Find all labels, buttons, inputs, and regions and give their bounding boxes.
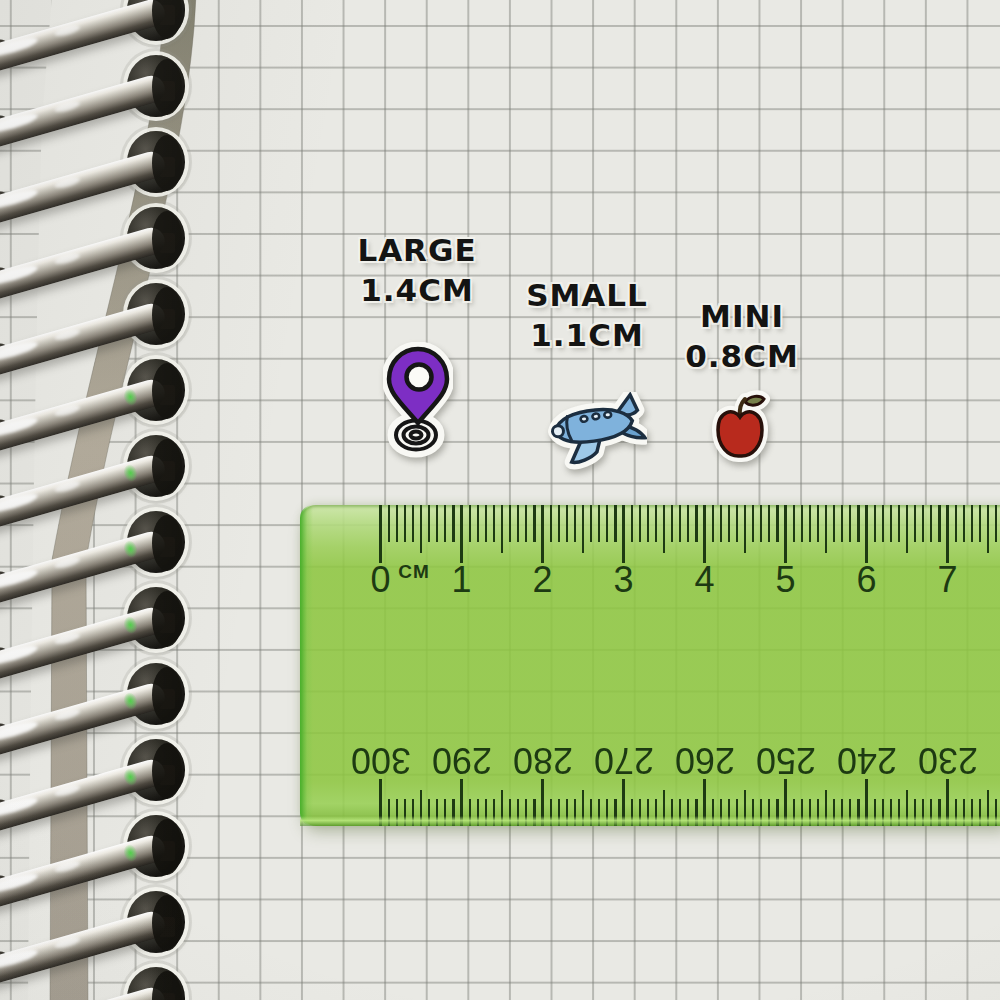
- ruler-tick: [728, 799, 730, 826]
- wire-highlight: [0, 642, 39, 667]
- ruler-tick: [533, 505, 535, 542]
- ruler-tick: [720, 505, 722, 542]
- ruler-tick: [671, 505, 673, 542]
- ruler-tick: [979, 505, 981, 542]
- wire-highlight: [54, 251, 81, 266]
- sticker-airplane: [543, 392, 647, 470]
- ruler-tick: [525, 799, 527, 826]
- ruler-tick: [703, 779, 705, 826]
- ruler-tick: [452, 799, 454, 826]
- ruler-tick: [679, 505, 681, 542]
- ruler-tick: [614, 505, 616, 542]
- wire-highlight: [0, 566, 39, 591]
- wire-green-reflection: [122, 843, 139, 863]
- ruler-tick: [541, 779, 543, 826]
- ruler-tick: [987, 790, 989, 826]
- ruler-tick: [995, 505, 997, 542]
- wire-green-reflection: [122, 691, 139, 711]
- ruler-tick: [671, 799, 673, 826]
- ruler-tick: [388, 505, 390, 542]
- ruler-number-bottom: 260: [668, 745, 742, 775]
- ruler-tick: [857, 799, 859, 826]
- ruler-tick: [550, 799, 552, 826]
- ruler-tick: [404, 799, 406, 826]
- ruler-tick: [631, 799, 633, 826]
- ruler: 01234567 300290280270260250240230 CM: [300, 505, 1000, 826]
- ruler-tick: [874, 799, 876, 826]
- ruler-tick: [631, 505, 633, 542]
- wire-green-reflection: [122, 463, 139, 483]
- ruler-tick: [598, 505, 600, 542]
- sticker-apple: [709, 389, 771, 468]
- ruler-tick: [655, 505, 657, 542]
- ruler-tick: [444, 505, 446, 542]
- ruler-tick: [712, 799, 714, 826]
- ruler-tick: [485, 799, 487, 826]
- wire-highlight: [0, 794, 39, 819]
- wire-highlight: [54, 555, 81, 570]
- ruler-tick: [841, 505, 843, 542]
- ruler-tick: [379, 505, 381, 563]
- wire-highlight: [54, 175, 81, 190]
- ruler-number-top: 1: [432, 562, 492, 598]
- ruler-tick: [477, 799, 479, 826]
- sticker-location-pin: [383, 342, 453, 460]
- ruler-tick: [971, 505, 973, 542]
- ruler-tick: [574, 505, 576, 542]
- ruler-tick: [655, 799, 657, 826]
- ruler-tick: [987, 505, 989, 553]
- ruler-tick: [784, 779, 786, 826]
- wire-highlight: [0, 870, 39, 895]
- label-small-size: 1.1CM: [507, 315, 667, 355]
- ruler-tick: [558, 799, 560, 826]
- wire-highlight: [54, 707, 81, 722]
- ruler-tick: [501, 505, 503, 553]
- ruler-tick: [412, 799, 414, 826]
- label-large-title: LARGE: [337, 230, 497, 270]
- ruler-tick: [793, 505, 795, 542]
- ruler-tick: [720, 799, 722, 826]
- ruler-tick: [639, 505, 641, 542]
- ruler-tick: [647, 505, 649, 542]
- ruler-tick: [784, 505, 786, 563]
- ruler-tick: [622, 779, 624, 826]
- ruler-tick: [509, 505, 511, 542]
- ruler-tick: [728, 505, 730, 542]
- ruler-tick: [825, 505, 827, 553]
- ruler-tick: [857, 505, 859, 542]
- ruler-tick: [833, 505, 835, 542]
- wire-highlight: [0, 186, 39, 211]
- ring-hole-shadow: [152, 439, 182, 495]
- ruler-tick: [485, 505, 487, 542]
- ruler-number-bottom: 250: [749, 745, 823, 775]
- wire-highlight: [0, 262, 39, 287]
- label-large: LARGE 1.4CM: [337, 230, 497, 310]
- ruler-tick: [582, 790, 584, 826]
- ruler-tick: [420, 790, 422, 826]
- ruler-number-top: 4: [675, 562, 735, 598]
- label-large-size: 1.4CM: [337, 270, 497, 310]
- wire-highlight: [54, 327, 81, 342]
- wire-highlight: [54, 23, 81, 38]
- ruler-tick: [971, 799, 973, 826]
- ring-hole-shadow: [152, 515, 182, 571]
- ring-hole-shadow: [152, 363, 182, 419]
- ruler-tick: [922, 505, 924, 542]
- ruler-tick: [882, 799, 884, 826]
- ruler-tick: [388, 799, 390, 826]
- ruler-tick: [679, 799, 681, 826]
- ruler-tick: [460, 505, 462, 563]
- ruler-tick: [396, 505, 398, 542]
- ruler-tick: [979, 799, 981, 826]
- ruler-tick: [736, 505, 738, 542]
- ruler-tick: [882, 505, 884, 542]
- ruler-tick: [914, 505, 916, 542]
- ruler-number-bottom: 300: [344, 745, 418, 775]
- ruler-tick: [760, 799, 762, 826]
- ruler-tick: [598, 799, 600, 826]
- ruler-tick: [938, 799, 940, 826]
- wire-highlight: [0, 718, 39, 743]
- wire-highlight: [0, 110, 39, 135]
- ruler-tick: [647, 799, 649, 826]
- ruler-tick: [379, 779, 381, 826]
- ruler-tick: [687, 505, 689, 542]
- wire-green-reflection: [122, 767, 139, 787]
- ruler-tick: [817, 505, 819, 542]
- wire-highlight: [54, 631, 81, 646]
- ruler-tick: [938, 505, 940, 542]
- ruler-tick: [428, 505, 430, 542]
- ruler-number-top: 6: [837, 562, 897, 598]
- ruler-tick: [469, 799, 471, 826]
- ring-hole-shadow: [152, 819, 182, 875]
- wire-highlight: [54, 783, 81, 798]
- ruler-tick: [768, 799, 770, 826]
- ruler-tick: [558, 505, 560, 542]
- ruler-tick: [541, 505, 543, 563]
- ruler-tick: [995, 799, 997, 826]
- label-mini-title: MINI: [662, 296, 822, 336]
- ruler-tick: [752, 799, 754, 826]
- wire-green-reflection: [122, 539, 139, 559]
- ring-hole-shadow: [152, 59, 182, 115]
- ruler-tick: [801, 505, 803, 542]
- ruler-tick: [930, 799, 932, 826]
- ruler-number-bottom: 240: [830, 745, 904, 775]
- ruler-tick: [509, 799, 511, 826]
- ruler-tick: [801, 799, 803, 826]
- ruler-tick: [955, 505, 957, 542]
- wire-green-reflection: [122, 387, 139, 407]
- ring-hole-shadow: [152, 667, 182, 723]
- ruler-number-bottom: 230: [911, 745, 985, 775]
- ruler-tick: [914, 799, 916, 826]
- ruler-tick: [817, 799, 819, 826]
- ruler-tick: [930, 505, 932, 542]
- ruler-tick: [517, 505, 519, 542]
- ruler-tick: [963, 505, 965, 542]
- ruler-tick: [744, 790, 746, 826]
- ruler-tick: [776, 799, 778, 826]
- ruler-tick: [906, 790, 908, 826]
- ruler-tick: [590, 799, 592, 826]
- ruler-tick: [874, 505, 876, 542]
- ruler-tick: [906, 505, 908, 553]
- ruler-tick: [606, 799, 608, 826]
- ruler-tick: [428, 799, 430, 826]
- ruler-tick: [501, 790, 503, 826]
- ruler-tick: [533, 799, 535, 826]
- ruler-tick: [493, 505, 495, 542]
- ruler-tick: [898, 799, 900, 826]
- ruler-tick: [963, 799, 965, 826]
- ruler-tick: [525, 505, 527, 542]
- ruler-tick: [566, 799, 568, 826]
- ruler-tick: [833, 799, 835, 826]
- wire-highlight: [54, 403, 81, 418]
- wire-highlight: [0, 946, 39, 971]
- label-small-title: SMALL: [507, 275, 667, 315]
- ruler-tick: [469, 505, 471, 542]
- ruler-tick: [550, 505, 552, 542]
- ruler-tick: [663, 790, 665, 826]
- ruler-tick: [582, 505, 584, 553]
- ring-hole-shadow: [152, 895, 182, 951]
- ruler-number-bottom: 290: [425, 745, 499, 775]
- ruler-tick: [849, 799, 851, 826]
- wire-green-reflection: [122, 615, 139, 635]
- ruler-number-top: 2: [513, 562, 573, 598]
- ruler-tick: [436, 799, 438, 826]
- ring-hole-shadow: [152, 287, 182, 343]
- ruler-tick: [566, 505, 568, 542]
- ruler-tick: [744, 505, 746, 553]
- ruler-tick: [955, 799, 957, 826]
- ruler-tick: [946, 505, 948, 563]
- label-small: SMALL 1.1CM: [507, 275, 667, 355]
- photo-scene: LARGE 1.4CM SMALL 1.1CM MINI 0.8CM: [0, 0, 1000, 1000]
- ruler-tick: [404, 505, 406, 542]
- ruler-tick: [412, 505, 414, 542]
- label-mini: MINI 0.8CM: [662, 296, 822, 376]
- ring-hole-shadow: [152, 743, 182, 799]
- ruler-tick: [590, 505, 592, 542]
- ruler-tick: [460, 779, 462, 826]
- ruler-number-bottom: 270: [587, 745, 661, 775]
- pin-hole: [407, 365, 432, 390]
- apple-body: [718, 412, 762, 456]
- ruler-tick: [452, 505, 454, 542]
- ruler-tick: [841, 799, 843, 826]
- ruler-number-top: 3: [594, 562, 654, 598]
- ruler-tick: [825, 790, 827, 826]
- ruler-tick: [663, 505, 665, 553]
- ruler-tick: [606, 505, 608, 542]
- ruler-tick: [574, 799, 576, 826]
- ruler-tick: [614, 799, 616, 826]
- wire-highlight: [54, 479, 81, 494]
- ruler-tick: [622, 505, 624, 563]
- ring-hole-shadow: [152, 591, 182, 647]
- ruler-tick: [809, 799, 811, 826]
- ruler-number-top: 5: [756, 562, 816, 598]
- ruler-unit-label: CM: [395, 561, 433, 583]
- ruler-number-bottom: 280: [506, 745, 580, 775]
- wire-highlight: [0, 338, 39, 363]
- spiral-binding: [0, 0, 1000, 1000]
- ruler-tick: [695, 505, 697, 542]
- ruler-tick: [736, 799, 738, 826]
- ruler-tick: [793, 799, 795, 826]
- ruler-tick: [444, 799, 446, 826]
- wire-highlight: [0, 34, 39, 59]
- ruler-tick: [776, 505, 778, 542]
- ruler-tick: [712, 505, 714, 542]
- ruler-tick: [890, 799, 892, 826]
- plane-nose: [552, 425, 564, 437]
- ruler-tick: [436, 505, 438, 542]
- wire-highlight: [0, 414, 39, 439]
- ruler-tick: [898, 505, 900, 542]
- wire-highlight: [0, 490, 39, 515]
- ruler-tick: [922, 799, 924, 826]
- ruler-tick: [517, 799, 519, 826]
- ruler-tick: [752, 505, 754, 542]
- ring-hole-shadow: [152, 135, 182, 191]
- ruler-tick: [760, 505, 762, 542]
- ruler-tick: [890, 505, 892, 542]
- ruler-tick: [703, 505, 705, 563]
- wire-highlight: [54, 859, 81, 874]
- wire-highlight: [54, 935, 81, 950]
- ruler-tick: [639, 799, 641, 826]
- ruler-tick: [865, 779, 867, 826]
- ruler-tick: [768, 505, 770, 542]
- wire-highlight: [54, 99, 81, 114]
- ruler-tick: [420, 505, 422, 553]
- ruler-number-top: 7: [918, 562, 978, 598]
- ruler-tick: [687, 799, 689, 826]
- ruler-tick: [809, 505, 811, 542]
- ruler-tick: [865, 505, 867, 563]
- ruler-tick: [493, 799, 495, 826]
- apple-leaf: [745, 396, 764, 405]
- ring-hole-shadow: [152, 211, 182, 267]
- ruler-tick: [477, 505, 479, 542]
- ruler-tick: [849, 505, 851, 542]
- label-mini-size: 0.8CM: [662, 336, 822, 376]
- ruler-tick: [946, 779, 948, 826]
- ruler-tick: [695, 799, 697, 826]
- ruler-tick: [396, 799, 398, 826]
